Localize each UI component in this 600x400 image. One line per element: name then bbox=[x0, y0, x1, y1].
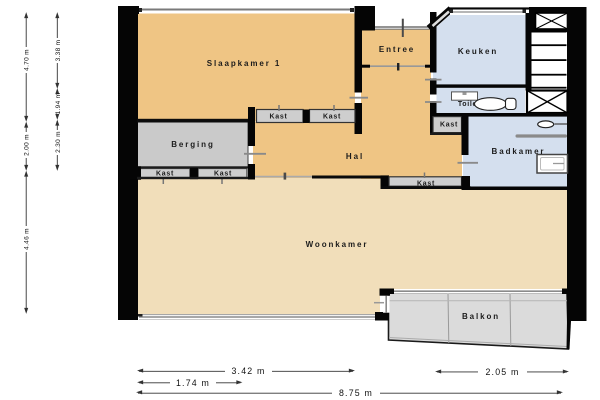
svg-text:Kast: Kast bbox=[417, 181, 435, 188]
svg-text:Kast: Kast bbox=[214, 171, 232, 178]
svg-text:8.75 m: 8.75 m bbox=[339, 388, 373, 398]
svg-text:Keuken: Keuken bbox=[458, 47, 498, 56]
svg-text:2.30 m: 2.30 m bbox=[55, 131, 62, 153]
svg-text:Balkon: Balkon bbox=[462, 312, 500, 321]
svg-text:Entree: Entree bbox=[379, 45, 415, 54]
svg-text:Woonkamer: Woonkamer bbox=[306, 240, 369, 249]
svg-text:Hal: Hal bbox=[346, 152, 364, 161]
svg-text:1.94 m: 1.94 m bbox=[55, 93, 62, 115]
svg-text:Kast: Kast bbox=[270, 114, 288, 121]
svg-text:3.38 m: 3.38 m bbox=[55, 40, 62, 62]
svg-text:Berging: Berging bbox=[171, 140, 215, 149]
svg-text:Kast: Kast bbox=[156, 171, 174, 178]
svg-text:Badkamer: Badkamer bbox=[492, 147, 546, 156]
svg-text:1.74 m: 1.74 m bbox=[176, 378, 210, 388]
svg-text:4.46 m: 4.46 m bbox=[24, 228, 31, 250]
svg-text:Slaapkamer 1: Slaapkamer 1 bbox=[207, 59, 281, 68]
svg-text:2.05 m: 2.05 m bbox=[485, 367, 519, 377]
svg-text:Kast: Kast bbox=[440, 122, 458, 129]
svg-text:4.70 m: 4.70 m bbox=[24, 49, 31, 71]
svg-text:2.00 m: 2.00 m bbox=[24, 134, 31, 156]
svg-text:3.42 m: 3.42 m bbox=[231, 366, 265, 376]
svg-text:Kast: Kast bbox=[323, 114, 341, 121]
